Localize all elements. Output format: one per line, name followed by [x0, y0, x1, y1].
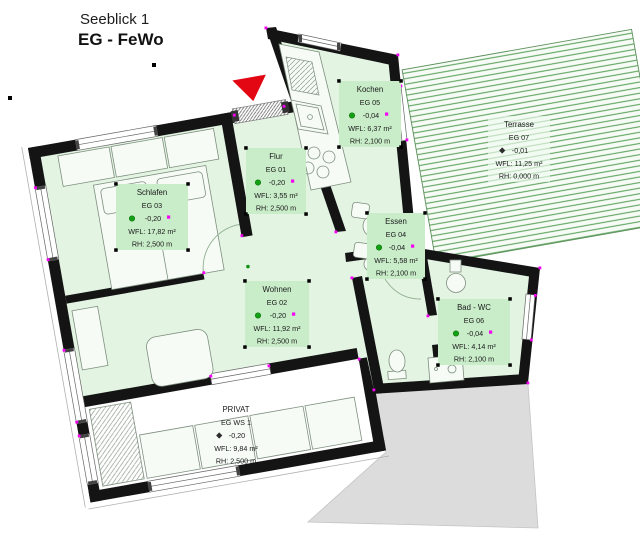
room-label-kochen[interactable]: Kochen EG 05 -0,04 WFL: 6,37 m² RH: 2,10… — [337, 79, 403, 149]
room-code: EG 04 — [386, 230, 406, 239]
room-code: EG WS 1 — [221, 418, 251, 427]
level-marker-icon — [255, 313, 260, 318]
floor-plan-page: Schlafen EG 03 -0,20 WFL: 17,82 m² RH: 2… — [0, 0, 640, 536]
room-height: RH: 2,500 m — [132, 240, 172, 249]
room-height: RH: 2,500 m — [216, 457, 256, 466]
room-height: RH: 0,000 m — [499, 172, 539, 181]
room-level: -0,04 — [467, 329, 483, 338]
room-area: WFL: 17,82 m² — [128, 227, 176, 236]
room-level: -0,20 — [269, 178, 285, 187]
level-marker-icon — [349, 113, 354, 118]
room-label-schlafen[interactable]: Schlafen EG 03 -0,20 WFL: 17,82 m² RH: 2… — [114, 182, 190, 252]
room-area: WFL: 3,55 m² — [254, 191, 298, 200]
entrance-arrow-icon — [232, 75, 270, 105]
room-code: EG 03 — [142, 201, 162, 210]
level-marker-icon — [255, 180, 260, 185]
room-code: EG 06 — [464, 316, 484, 325]
plan-title-block: Seeblick 1 EG - FeWo — [78, 11, 164, 49]
room-area: WFL: 11,25 m² — [496, 159, 544, 168]
plan-title: Seeblick 1 — [80, 11, 149, 28]
room-label-terrasse[interactable]: Terrasse EG 07 -0,01 WFL: 11,25 m² RH: 0… — [488, 116, 550, 182]
stray-handles — [8, 63, 156, 100]
room-name: Schlafen — [137, 188, 167, 197]
room-level: -0,04 — [389, 243, 405, 252]
room-label-bad[interactable]: Bad - WC EG 06 -0,04 WFL: 4,14 m² RH: 2,… — [436, 297, 512, 367]
room-area: WFL: 11,92 m² — [254, 324, 302, 333]
sofa-table — [145, 328, 215, 388]
room-code: EG 05 — [360, 98, 380, 107]
room-level: -0,20 — [145, 214, 161, 223]
room-name: PRIVAT — [222, 405, 249, 414]
room-name: Kochen — [357, 85, 383, 94]
room-level: -0,20 — [229, 431, 245, 440]
room-name: Flur — [269, 152, 283, 161]
room-label-wohnen[interactable]: Wohnen EG 02 -0,20 WFL: 11,92 m² RH: 2,5… — [243, 279, 311, 349]
room-height: RH: 2,500 m — [256, 204, 296, 213]
level-marker-icon — [376, 245, 381, 250]
room-height: RH: 2,100 m — [454, 355, 494, 364]
room-level: -0,20 — [270, 311, 286, 320]
room-area: WFL: 4,14 m² — [452, 342, 496, 351]
room-area: WFL: 5,58 m² — [374, 256, 418, 265]
room-code: EG 07 — [509, 133, 529, 142]
room-area: WFL: 9,84 m² — [214, 444, 258, 453]
room-name: Terrasse — [504, 120, 534, 129]
room-label-flur[interactable]: Flur EG 01 -0,20 WFL: 3,55 m² RH: 2,500 … — [244, 146, 308, 216]
room-level: -0,01 — [512, 146, 528, 155]
level-marker-icon — [129, 216, 134, 221]
room-code: EG 02 — [267, 298, 287, 307]
room-name: Wohnen — [263, 285, 292, 294]
room-level: -0,04 — [363, 111, 379, 120]
room-code: EG 01 — [266, 165, 286, 174]
room-height: RH: 2,100 m — [350, 137, 390, 146]
room-name: Essen — [385, 217, 407, 226]
room-name: Bad - WC — [457, 303, 491, 312]
floor-plan-canvas: Schlafen EG 03 -0,20 WFL: 17,82 m² RH: 2… — [0, 0, 640, 536]
room-height: RH: 2,100 m — [376, 269, 416, 278]
plan-subtitle: EG - FeWo — [78, 30, 164, 49]
room-label-essen[interactable]: Essen EG 04 -0,04 WFL: 5,58 m² RH: 2,100… — [365, 211, 427, 281]
room-area: WFL: 6,37 m² — [348, 124, 392, 133]
level-marker-icon — [453, 331, 458, 336]
room-height: RH: 2,500 m — [257, 337, 297, 346]
